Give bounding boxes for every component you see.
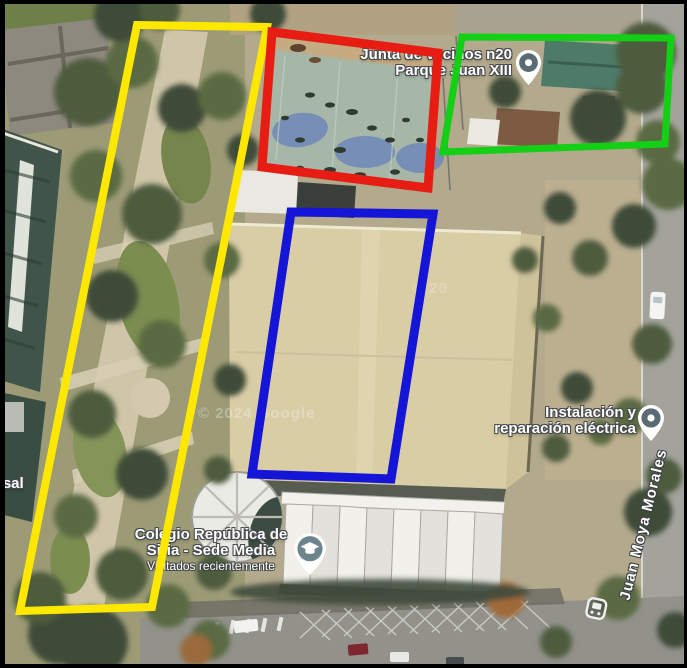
school-building-roof xyxy=(228,224,543,505)
school-pin-icon[interactable] xyxy=(292,532,328,576)
poi-label-colegio-line2: Siria - Sede Media xyxy=(128,543,294,559)
small-dark-roof xyxy=(296,182,356,218)
poi-label-colegio-subtitle: Visitados recientemente xyxy=(128,559,294,573)
poi-label-instalacion-line1: Instalación y xyxy=(480,405,636,421)
parked-white-car xyxy=(233,619,258,633)
poi-label-colegio[interactable]: Colegio República de Siria - Sede Media … xyxy=(128,527,294,573)
location-pin-icon-2[interactable] xyxy=(636,404,666,442)
poi-label-instalacion[interactable]: Instalación y reparación eléctrica xyxy=(480,405,636,437)
small-white-roof xyxy=(234,170,298,214)
poi-label-instalacion-line2: reparación eléctrica xyxy=(480,421,636,437)
parked-white-car-2 xyxy=(390,652,409,662)
white-car xyxy=(649,292,665,320)
parked-red-car xyxy=(348,643,369,656)
google-watermark: © 2024 Google xyxy=(198,405,315,422)
partial-left-label: rsal xyxy=(0,476,24,492)
google-watermark-partial: © 20 xyxy=(412,280,448,297)
poi-label-colegio-line1: Colegio República de xyxy=(128,527,294,543)
poi-label-junta[interactable]: Junta de vecinos n20 Parque Juan XIII xyxy=(320,47,512,79)
satellite-map-canvas[interactable]: Junta de vecinos n20 Parque Juan XIII In… xyxy=(0,0,687,668)
poi-label-junta-line2: Parque Juan XIII xyxy=(320,63,512,79)
satellite-imagery xyxy=(0,0,687,668)
parked-dark-car xyxy=(446,657,464,667)
location-pin-icon[interactable] xyxy=(514,49,543,86)
poi-label-junta-line1: Junta de vecinos n20 xyxy=(320,47,512,63)
